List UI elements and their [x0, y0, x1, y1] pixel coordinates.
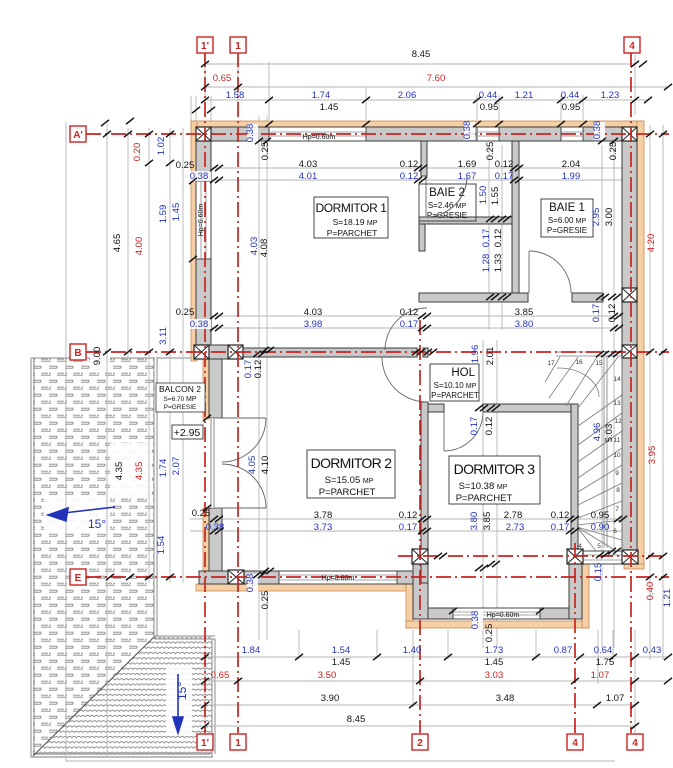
svg-text:1.58: 1.58 — [226, 90, 245, 101]
svg-text:3.80: 3.80 — [469, 512, 480, 531]
svg-text:2: 2 — [417, 738, 423, 749]
svg-text:4.03: 4.03 — [304, 307, 323, 318]
svg-text:0.12: 0.12 — [400, 307, 419, 318]
svg-text:DORMITOR 2: DORMITOR 2 — [311, 455, 393, 471]
svg-text:4: 4 — [632, 738, 638, 749]
svg-text:5: 5 — [597, 543, 601, 550]
svg-text:4.01: 4.01 — [299, 171, 318, 182]
svg-text:0.44: 0.44 — [561, 90, 580, 101]
svg-text:13: 13 — [613, 400, 621, 407]
svg-text:1.73: 1.73 — [485, 645, 504, 656]
svg-text:P=GRESIE: P=GRESIE — [164, 404, 197, 411]
svg-text:4.35: 4.35 — [134, 462, 145, 481]
svg-text:1.50: 1.50 — [478, 186, 489, 205]
svg-text:BAIE 1: BAIE 1 — [549, 202, 585, 214]
svg-text:0.12: 0.12 — [493, 229, 504, 248]
svg-text:0.90: 0.90 — [591, 522, 610, 533]
svg-text:0.65: 0.65 — [211, 670, 230, 681]
svg-text:3.98: 3.98 — [304, 319, 323, 330]
svg-text:1.23: 1.23 — [601, 90, 620, 101]
svg-text:2.07: 2.07 — [171, 457, 182, 476]
svg-text:4.10: 4.10 — [260, 456, 271, 475]
svg-text:0.64: 0.64 — [594, 645, 613, 656]
svg-text:6: 6 — [613, 528, 617, 535]
svg-text:4.08: 4.08 — [259, 239, 270, 258]
svg-text:9: 9 — [615, 470, 619, 477]
svg-text:4: 4 — [572, 738, 578, 749]
svg-text:1': 1' — [201, 41, 209, 52]
svg-text:1.74: 1.74 — [312, 90, 331, 101]
svg-text:1.99: 1.99 — [562, 171, 581, 182]
svg-text:0.38: 0.38 — [245, 124, 256, 143]
svg-text:0.43: 0.43 — [643, 645, 662, 656]
svg-text:0.38: 0.38 — [592, 121, 603, 140]
svg-text:0.25: 0.25 — [608, 142, 619, 161]
svg-text:1.33: 1.33 — [493, 254, 504, 273]
svg-text:16: 16 — [575, 359, 583, 366]
svg-text:2.04: 2.04 — [562, 159, 581, 170]
svg-text:0.95: 0.95 — [562, 102, 581, 113]
svg-text:0.38: 0.38 — [470, 611, 481, 630]
svg-text:14: 14 — [613, 376, 621, 383]
svg-text:0.12: 0.12 — [253, 360, 264, 379]
svg-text:1.07: 1.07 — [591, 670, 610, 681]
svg-text:1.21: 1.21 — [515, 90, 534, 101]
svg-text:DORMITOR 1: DORMITOR 1 — [315, 201, 387, 215]
svg-text:0.25: 0.25 — [192, 508, 211, 519]
svg-text:Hp=0.60m: Hp=0.60m — [198, 204, 205, 237]
svg-text:E: E — [75, 573, 82, 584]
svg-text:P=PARCHET: P=PARCHET — [431, 391, 479, 400]
svg-text:Hp=0.60m: Hp=0.60m — [322, 575, 355, 582]
svg-text:2.73: 2.73 — [506, 522, 525, 533]
svg-text:1.55: 1.55 — [490, 187, 501, 206]
svg-text:1.40: 1.40 — [403, 645, 422, 656]
svg-text:1.07: 1.07 — [606, 693, 625, 704]
svg-text:3.48: 3.48 — [496, 693, 515, 704]
svg-text:1.45: 1.45 — [332, 657, 351, 668]
svg-text:BAIE 2: BAIE 2 — [429, 187, 465, 199]
svg-text:1.69: 1.69 — [458, 159, 477, 170]
svg-text:3.03: 3.03 — [485, 670, 504, 681]
svg-text:S=6.70 MP: S=6.70 MP — [163, 396, 196, 403]
svg-text:8.45: 8.45 — [347, 714, 366, 725]
svg-text:3.85: 3.85 — [482, 512, 493, 531]
svg-text:Hp=0.60m: Hp=0.60m — [303, 134, 336, 141]
svg-text:15°: 15° — [88, 517, 106, 531]
svg-text:3.95: 3.95 — [647, 446, 658, 465]
svg-text:0.17: 0.17 — [399, 522, 418, 533]
svg-text:1.59: 1.59 — [158, 205, 169, 224]
svg-text:1.28: 1.28 — [481, 254, 492, 273]
svg-text:12: 12 — [614, 418, 622, 425]
svg-text:3.78: 3.78 — [314, 510, 333, 521]
svg-text:HOL: HOL — [451, 367, 475, 379]
svg-text:4.65: 4.65 — [112, 234, 123, 253]
svg-text:0.65: 0.65 — [213, 73, 232, 84]
svg-text:1.45: 1.45 — [171, 203, 182, 222]
svg-text:1: 1 — [235, 738, 241, 749]
svg-text:0.17: 0.17 — [400, 319, 419, 330]
svg-text:3.00: 3.00 — [604, 208, 615, 227]
svg-text:0.15: 0.15 — [593, 563, 604, 582]
svg-text:+2.95: +2.95 — [174, 427, 201, 439]
svg-text:P=GRESIE: P=GRESIE — [547, 226, 587, 235]
svg-text:2.78: 2.78 — [504, 510, 523, 521]
svg-text:3.11: 3.11 — [158, 327, 169, 345]
svg-text:0.12: 0.12 — [399, 510, 418, 521]
svg-text:3.50: 3.50 — [318, 670, 337, 681]
svg-text:0.17: 0.17 — [481, 229, 492, 248]
svg-text:0.38: 0.38 — [190, 319, 209, 330]
svg-text:4.35: 4.35 — [114, 462, 125, 481]
svg-text:S=6.00 MP: S=6.00 MP — [548, 216, 587, 225]
svg-text:1.54: 1.54 — [332, 645, 351, 656]
svg-text:0.25: 0.25 — [176, 307, 195, 318]
svg-text:8: 8 — [616, 487, 620, 494]
svg-text:B: B — [74, 348, 81, 359]
svg-text:DORMITOR 3: DORMITOR 3 — [454, 461, 536, 477]
svg-text:3.85: 3.85 — [515, 307, 534, 318]
svg-text:0.17: 0.17 — [551, 522, 570, 533]
svg-text:S=2.46 MP: S=2.46 MP — [428, 201, 467, 210]
svg-text:4.05: 4.05 — [247, 456, 258, 475]
svg-text:7.60: 7.60 — [427, 73, 446, 84]
svg-text:10: 10 — [613, 452, 621, 459]
svg-text:0.25: 0.25 — [260, 142, 271, 161]
svg-text:0.12: 0.12 — [400, 159, 419, 170]
svg-text:1.54: 1.54 — [156, 536, 167, 555]
svg-text:3.90: 3.90 — [321, 693, 340, 704]
svg-text:0.25: 0.25 — [484, 624, 495, 643]
svg-text:4: 4 — [578, 543, 582, 550]
svg-text:2.95: 2.95 — [591, 208, 602, 227]
svg-text:0.12: 0.12 — [495, 159, 514, 170]
svg-text:0.12: 0.12 — [400, 171, 419, 182]
svg-text:4.96: 4.96 — [592, 423, 603, 442]
svg-text:0.25: 0.25 — [260, 591, 271, 610]
svg-text:P=PARCHET: P=PARCHET — [319, 487, 376, 498]
svg-text:5.03: 5.03 — [604, 424, 615, 443]
svg-text:0.38: 0.38 — [462, 121, 473, 140]
svg-text:0.12: 0.12 — [607, 304, 618, 323]
svg-text:0.38: 0.38 — [190, 171, 209, 182]
svg-text:A': A' — [73, 130, 83, 141]
svg-text:1.21: 1.21 — [662, 589, 673, 608]
svg-text:4: 4 — [629, 41, 635, 52]
svg-text:9.00: 9.00 — [92, 347, 103, 366]
svg-text:15°: 15° — [175, 682, 189, 700]
svg-text:0.25: 0.25 — [176, 160, 195, 171]
svg-text:15: 15 — [595, 360, 603, 367]
svg-text:2.06: 2.06 — [398, 90, 417, 101]
svg-text:2.01: 2.01 — [485, 347, 496, 366]
svg-text:3.80: 3.80 — [515, 319, 534, 330]
svg-text:S=10.10 MP: S=10.10 MP — [434, 381, 477, 390]
svg-text:1.45: 1.45 — [485, 657, 504, 668]
svg-text:0.44: 0.44 — [479, 90, 498, 101]
svg-text:1: 1 — [235, 41, 241, 52]
svg-text:0.12: 0.12 — [484, 417, 495, 436]
svg-text:0.38: 0.38 — [206, 522, 225, 533]
svg-text:0.12: 0.12 — [551, 510, 570, 521]
svg-text:1.45: 1.45 — [320, 102, 339, 113]
svg-text:P=PARCHET: P=PARCHET — [327, 228, 378, 238]
svg-text:7: 7 — [615, 506, 619, 513]
svg-text:1.02: 1.02 — [156, 137, 167, 156]
svg-text:0.87: 0.87 — [554, 645, 573, 656]
svg-text:0.20: 0.20 — [132, 143, 143, 162]
svg-text:1.84: 1.84 — [242, 645, 261, 656]
svg-text:P=GRESIE: P=GRESIE — [427, 211, 467, 220]
svg-text:4.20: 4.20 — [646, 234, 657, 253]
svg-text:0.95: 0.95 — [591, 510, 610, 521]
svg-text:1.96: 1.96 — [470, 345, 481, 364]
svg-text:Hp=0.60m: Hp=0.60m — [487, 612, 520, 619]
svg-text:0.40: 0.40 — [645, 582, 656, 601]
svg-text:1': 1' — [201, 738, 209, 749]
svg-text:0.25: 0.25 — [485, 142, 496, 161]
svg-text:0.17: 0.17 — [495, 171, 514, 182]
svg-text:3.73: 3.73 — [314, 522, 333, 533]
svg-text:1.74: 1.74 — [158, 459, 169, 478]
svg-text:17: 17 — [547, 360, 555, 367]
svg-text:BALCON 2: BALCON 2 — [159, 384, 201, 394]
svg-text:4.00: 4.00 — [134, 237, 145, 256]
svg-text:4.03: 4.03 — [299, 159, 318, 170]
svg-text:0.17: 0.17 — [469, 417, 480, 436]
svg-text:8.45: 8.45 — [412, 49, 431, 60]
svg-text:P=PARCHET: P=PARCHET — [456, 493, 513, 504]
svg-text:0.17: 0.17 — [591, 304, 602, 323]
